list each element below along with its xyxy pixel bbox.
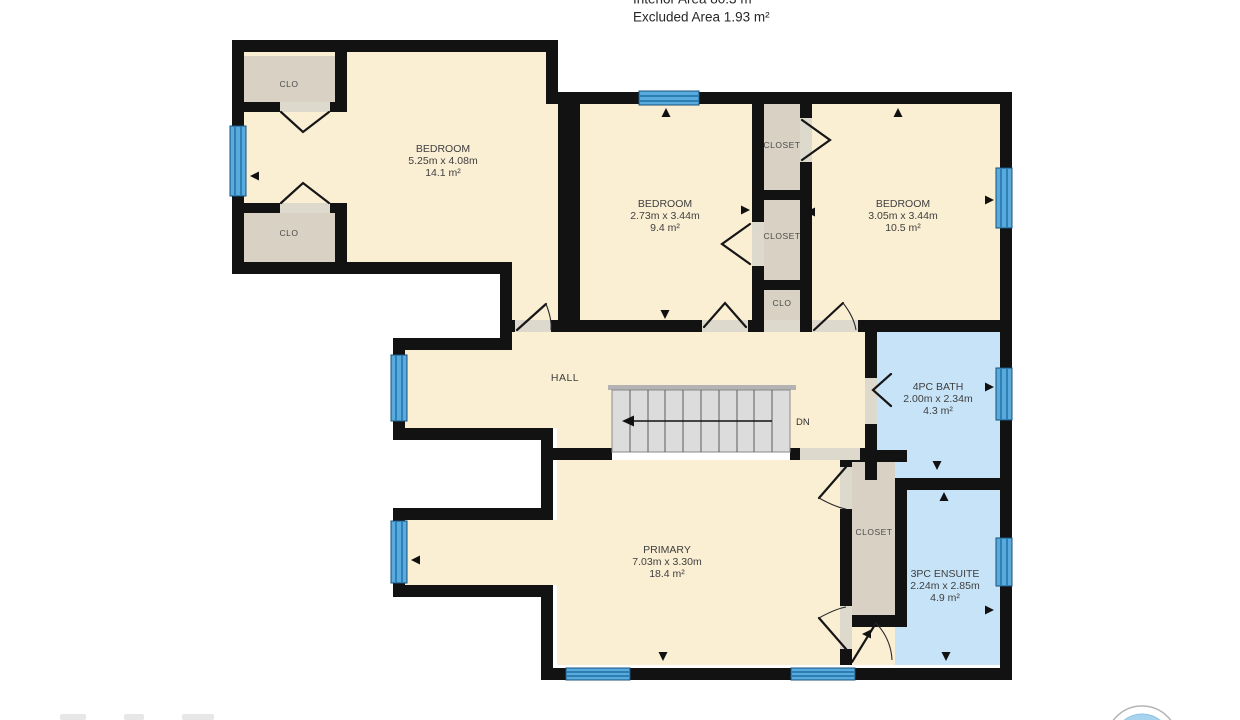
- svg-text:5.25m x 4.08m: 5.25m x 4.08m: [408, 155, 478, 167]
- closetD-label: CLOSET: [855, 527, 892, 537]
- stairs-dn-label: DN: [796, 417, 810, 428]
- svg-text:4PC BATH: 4PC BATH: [913, 381, 964, 393]
- hall-label: HALL: [551, 372, 579, 384]
- svg-text:10.5 m²: 10.5 m²: [885, 222, 921, 234]
- svg-text:4.3 m²: 4.3 m²: [923, 405, 953, 417]
- closetB-label: CLOSET: [763, 231, 800, 241]
- compass-logo: [1106, 706, 1178, 720]
- svg-text:2.00m x 2.34m: 2.00m x 2.34m: [903, 393, 973, 405]
- watermark-fragment: [60, 714, 214, 720]
- svg-text:3PC ENSUITE: 3PC ENSUITE: [911, 568, 980, 580]
- svg-text:2.24m x 2.85m: 2.24m x 2.85m: [910, 580, 980, 592]
- excluded-area-text: Excluded Area 1.93 m²: [633, 10, 770, 25]
- svg-text:PRIMARY: PRIMARY: [643, 544, 691, 556]
- svg-text:BEDROOM: BEDROOM: [876, 198, 930, 210]
- window-bedroom1-left: [230, 126, 246, 196]
- clo2-label: CLO: [280, 228, 299, 238]
- closetC-label: CLO: [773, 298, 792, 308]
- closetA-label: CLOSET: [763, 140, 800, 150]
- stair-rail: [608, 385, 796, 390]
- svg-text:3.05m x 3.44m: 3.05m x 3.44m: [868, 210, 938, 222]
- svg-text:7.03m x 3.30m: 7.03m x 3.30m: [632, 556, 702, 568]
- svg-text:BEDROOM: BEDROOM: [416, 143, 470, 155]
- svg-text:14.1 m²: 14.1 m²: [425, 167, 461, 179]
- staircase: [608, 385, 796, 452]
- svg-text:4.9 m²: 4.9 m²: [930, 592, 960, 604]
- svg-text:9.4 m²: 9.4 m²: [650, 222, 680, 234]
- room-fills: [244, 52, 1000, 665]
- interior-area-text: Interior Area 80.3 m²: [633, 0, 757, 7]
- window-primary-left: [391, 521, 407, 583]
- window-bedroom3-right: [996, 168, 1012, 228]
- svg-text:18.4 m²: 18.4 m²: [649, 568, 685, 580]
- floorplan-drawing: Interior Area 80.3 m² Excluded Area 1.93…: [0, 0, 1240, 720]
- svg-text:BEDROOM: BEDROOM: [638, 198, 692, 210]
- window-bath-right: [996, 368, 1012, 420]
- window-primary-bottom-2: [791, 668, 855, 680]
- clo1-label: CLO: [280, 79, 299, 89]
- window-ensuite-right: [996, 538, 1012, 586]
- svg-text:2.73m x 3.44m: 2.73m x 3.44m: [630, 210, 700, 222]
- header: Interior Area 80.3 m² Excluded Area 1.93…: [633, 0, 770, 25]
- floorplan-page: Interior Area 80.3 m² Excluded Area 1.93…: [0, 0, 1240, 720]
- window-primary-bottom: [566, 668, 630, 680]
- window-hall-left: [391, 355, 407, 421]
- window-bedroom2-top: [639, 91, 699, 105]
- closetD-floor: [852, 462, 895, 615]
